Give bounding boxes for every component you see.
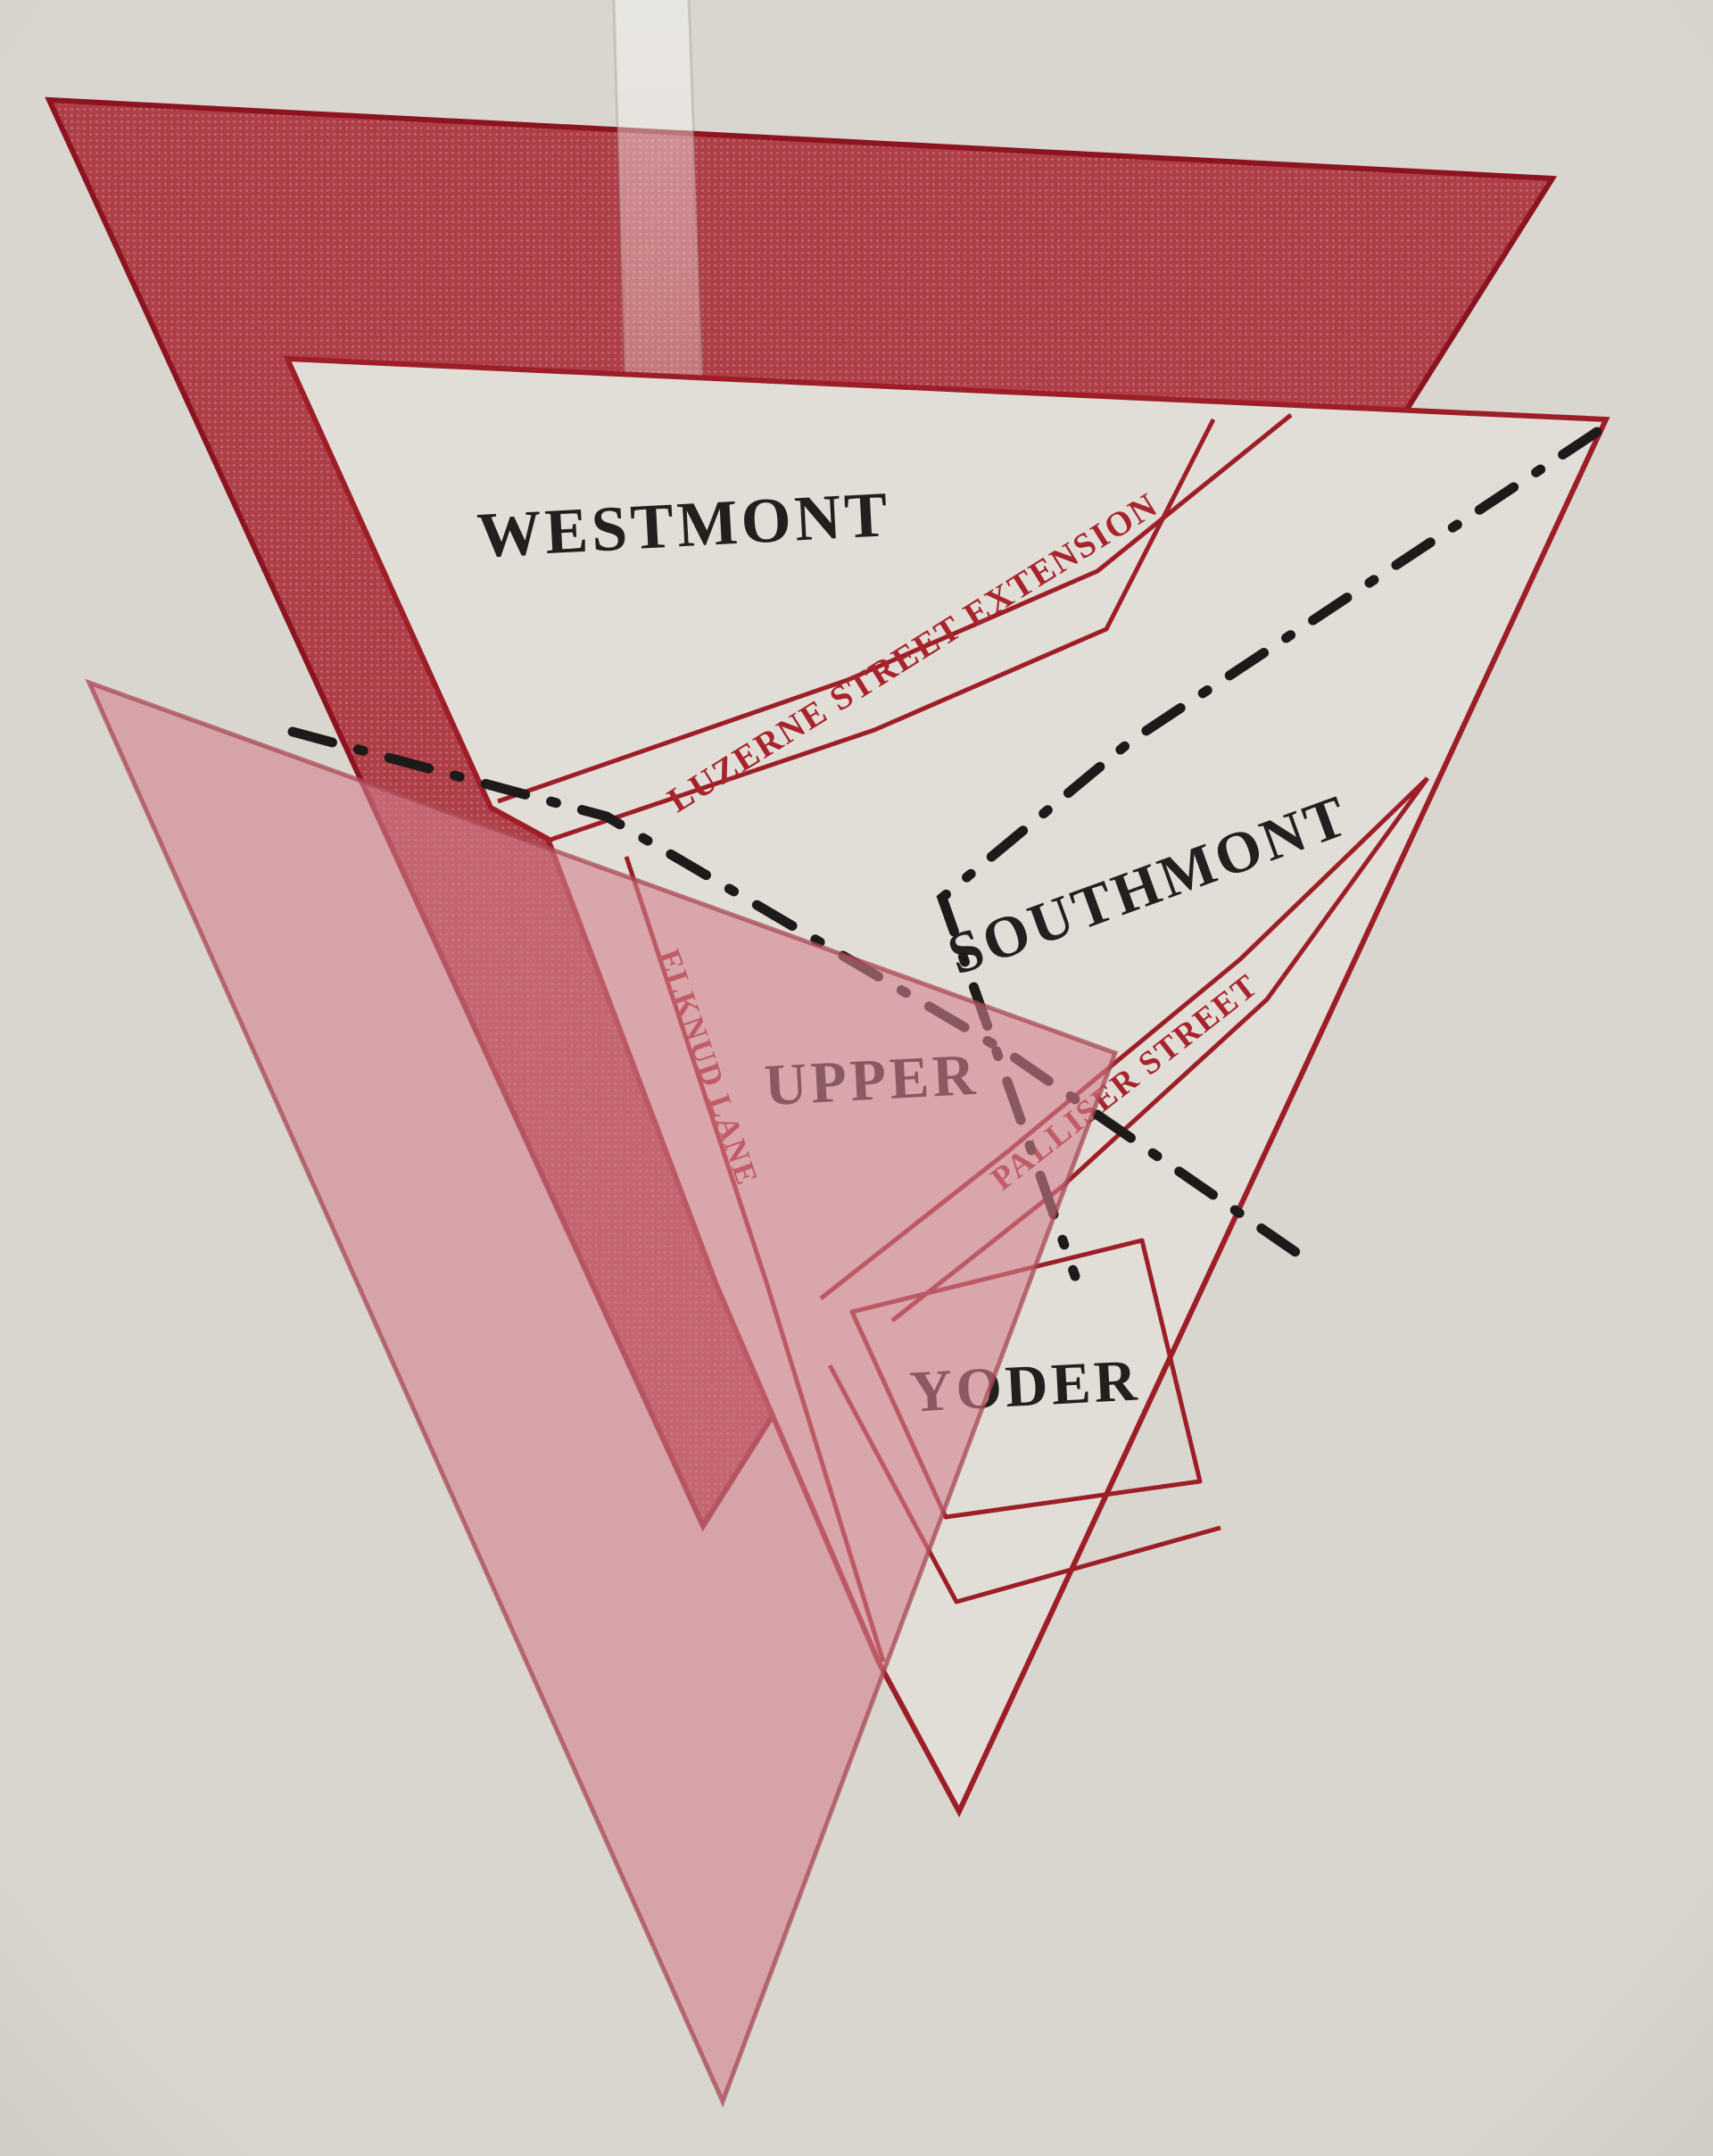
map-figure: LUZERNE STREET EXTENSION PALLISER STREET…	[0, 0, 1713, 2156]
printed-map-page: LUZERNE STREET EXTENSION PALLISER STREET…	[0, 0, 1713, 2156]
photo-vignette	[0, 0, 1713, 2156]
